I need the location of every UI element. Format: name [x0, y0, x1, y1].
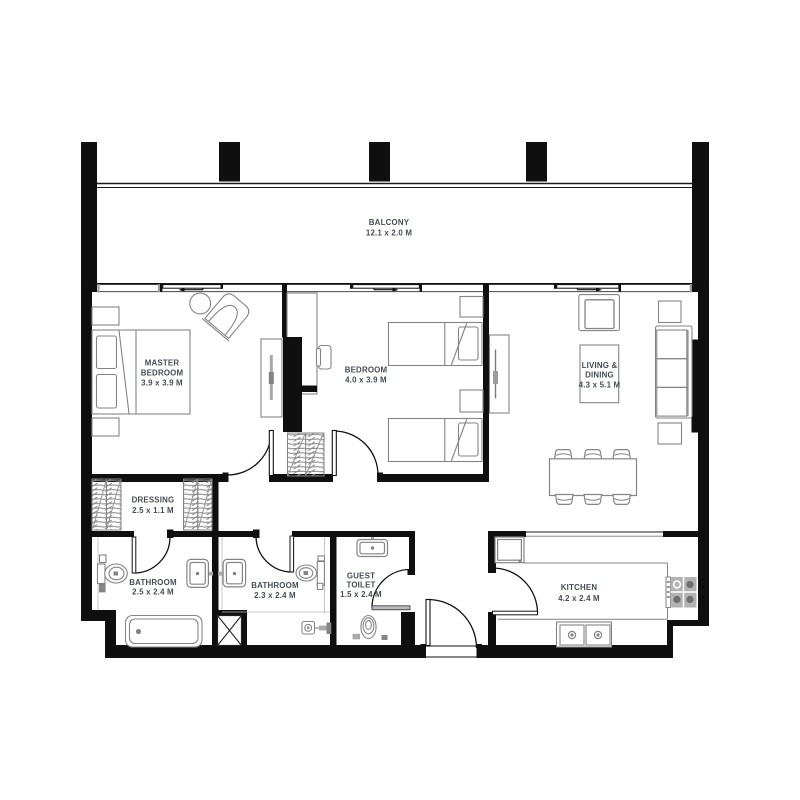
svg-text:LIVING &: LIVING &: [582, 361, 618, 370]
svg-text:BEDROOM: BEDROOM: [345, 366, 388, 375]
svg-text:12.1 x 2.0 M: 12.1 x 2.0 M: [366, 229, 412, 238]
svg-text:MASTER: MASTER: [145, 359, 180, 368]
svg-text:BALCONY: BALCONY: [369, 218, 410, 227]
svg-text:4.2 x 2.4 M: 4.2 x 2.4 M: [558, 594, 600, 603]
svg-text:BEDROOM: BEDROOM: [141, 369, 184, 378]
svg-text:BATHROOM: BATHROOM: [129, 578, 177, 587]
svg-text:2.5 x 2.4 M: 2.5 x 2.4 M: [132, 588, 174, 597]
svg-text:4.3 x 5.1 M: 4.3 x 5.1 M: [579, 381, 621, 390]
svg-text:3.9 x 3.9 M: 3.9 x 3.9 M: [141, 379, 183, 388]
svg-text:KITCHEN: KITCHEN: [561, 583, 598, 592]
svg-text:1.5 x 2.4 M: 1.5 x 2.4 M: [340, 590, 382, 599]
svg-text:2.5 x 1.1 M: 2.5 x 1.1 M: [132, 506, 174, 515]
svg-text:DINING: DINING: [585, 371, 614, 380]
svg-text:DRESSING: DRESSING: [132, 496, 175, 505]
svg-text:TOILET: TOILET: [346, 581, 375, 590]
svg-text:BATHROOM: BATHROOM: [251, 581, 299, 590]
svg-text:2.3 x 2.4 M: 2.3 x 2.4 M: [254, 591, 296, 600]
svg-text:GUEST: GUEST: [347, 572, 375, 581]
svg-text:4.0 x 3.9 M: 4.0 x 3.9 M: [345, 376, 387, 385]
